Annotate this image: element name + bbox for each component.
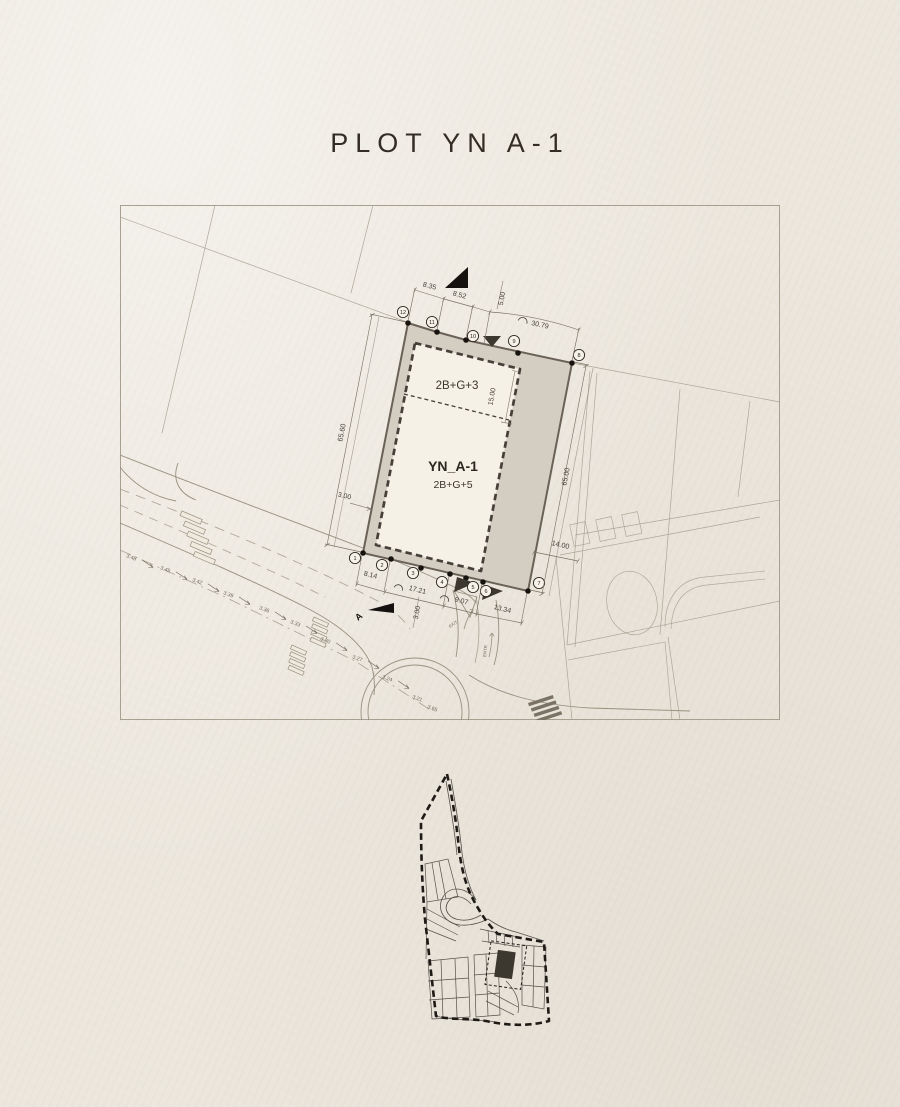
section-letter: A bbox=[353, 610, 365, 622]
entry-lane-arrow bbox=[489, 633, 494, 657]
lane-labels: EXIT ENTR bbox=[448, 619, 488, 657]
vertex-number: 3 bbox=[411, 571, 414, 577]
section-flag-top bbox=[445, 267, 468, 288]
context-blocks bbox=[568, 512, 765, 720]
crosswalk-upper-left bbox=[168, 511, 228, 565]
spot-elevation: 3.65 bbox=[426, 704, 438, 713]
dim-top-1: 8.35 bbox=[422, 281, 437, 291]
road-lane-dash-2 bbox=[120, 505, 325, 597]
vertex-number: 10 bbox=[470, 334, 476, 340]
spot-elevation: 3.45 bbox=[159, 565, 171, 574]
exit-lane-label: EXIT bbox=[448, 619, 459, 629]
key-map-drawing bbox=[408, 766, 562, 1042]
dim-top-2: 8.52 bbox=[452, 290, 467, 300]
site-plan-frame: 3.48 3.45 3.42 3.39 3.36 3.33 3.30 3.27 … bbox=[120, 205, 780, 720]
vertex-number: 4 bbox=[440, 580, 443, 586]
annex-height-label: 2B+G+3 bbox=[436, 380, 479, 392]
key-map-hairpin-outer bbox=[440, 889, 488, 925]
vertex-number: 1 bbox=[353, 556, 356, 562]
dim-right-side: 65.00 bbox=[559, 467, 571, 486]
crosswalk-bottom-right bbox=[528, 694, 562, 720]
section-flag-bottom bbox=[368, 603, 394, 613]
spot-elevation: 3.27 bbox=[351, 654, 363, 663]
key-map-boundary bbox=[421, 774, 549, 1025]
page-title: PLOT YN A-1 bbox=[0, 128, 900, 159]
vertex-number: 5 bbox=[471, 585, 474, 591]
dim-top-3: 5.00 bbox=[498, 291, 507, 306]
spot-elevation: 3.42 bbox=[191, 577, 203, 586]
key-map bbox=[408, 766, 562, 1042]
spot-elevation: 3.39 bbox=[222, 590, 234, 599]
vertex-number: 6 bbox=[484, 589, 487, 595]
site-plan-drawing: 3.48 3.45 3.42 3.39 3.36 3.33 3.30 3.27 … bbox=[120, 205, 780, 720]
curb-left-2 bbox=[176, 463, 196, 500]
spot-elevation: 3.33 bbox=[289, 619, 301, 628]
plot-name-label: YN_A-1 bbox=[428, 458, 478, 474]
vertex-number: 8 bbox=[577, 353, 580, 359]
road-exit-right bbox=[469, 675, 690, 711]
dim-left-setback: 3.00 bbox=[337, 492, 352, 502]
dim-left-side: 65.60 bbox=[335, 423, 347, 442]
road-centerline bbox=[120, 550, 432, 711]
vertex-number: 11 bbox=[429, 320, 435, 326]
plot-group: 2B+G+3 YN_A-1 2B+G+5 A 1 2 3 4 5 bbox=[349, 267, 584, 623]
dim-right-road: 14.00 bbox=[551, 538, 571, 551]
plot-height-label: 2B+G+5 bbox=[433, 479, 472, 491]
spot-elevation: 3.36 bbox=[258, 605, 270, 614]
vertex-number: 9 bbox=[512, 339, 515, 345]
vertex-number: 2 bbox=[380, 563, 383, 569]
branch-divider bbox=[475, 596, 479, 663]
entry-lane-label: ENTR bbox=[482, 645, 488, 657]
vertex-number: 7 bbox=[537, 581, 540, 587]
dim-bottom-curve-1: 17.21 bbox=[408, 585, 427, 596]
key-map-plot-marker bbox=[494, 950, 516, 979]
spot-elevations: 3.48 3.45 3.42 3.39 3.36 3.33 3.30 3.27 … bbox=[125, 553, 438, 713]
vertex-number: 12 bbox=[400, 310, 406, 316]
dim-top-curve: 30.79 bbox=[531, 320, 550, 331]
roundabout-inner bbox=[368, 665, 462, 720]
curb-left-1 bbox=[120, 467, 176, 501]
dim-bottom-2: 13.34 bbox=[493, 604, 512, 615]
crosswalk-mid-2 bbox=[282, 645, 312, 675]
key-map-roads bbox=[440, 779, 544, 941]
spot-elevation: 3.48 bbox=[125, 553, 137, 562]
dim-bottom-1: 8.14 bbox=[363, 571, 378, 581]
spot-elevation: 3.21 bbox=[411, 694, 423, 703]
road-edge-lower bbox=[120, 523, 374, 695]
key-map-plot-locator bbox=[485, 941, 527, 990]
dim-bottom-setback: 3.00 bbox=[413, 605, 422, 620]
